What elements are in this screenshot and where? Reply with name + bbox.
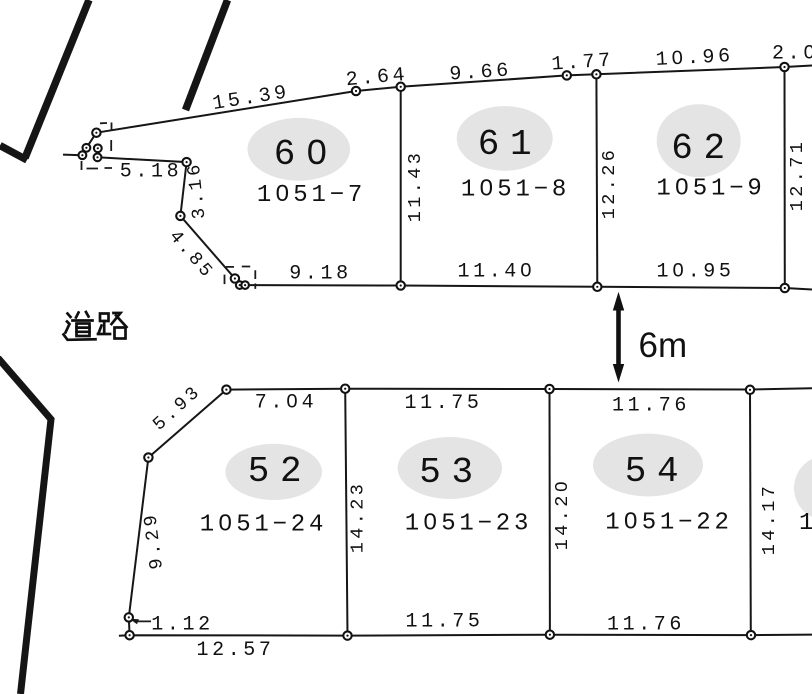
svg-text:14.17: 14.17 <box>759 483 780 556</box>
svg-text:61: 61 <box>478 124 542 165</box>
svg-text:10.95: 10.95 <box>656 261 734 284</box>
svg-text:11.40: 11.40 <box>457 261 535 284</box>
svg-text:1.77: 1.77 <box>551 49 615 76</box>
svg-text:1.12: 1.12 <box>151 614 213 637</box>
svg-text:6m: 6m <box>639 326 688 365</box>
svg-text:14.23: 14.23 <box>348 481 369 554</box>
svg-text:1051−23: 1051−23 <box>405 511 532 538</box>
svg-text:1051−8: 1051−8 <box>461 177 570 204</box>
svg-text:11.75: 11.75 <box>404 392 482 415</box>
svg-text:54: 54 <box>625 451 689 492</box>
svg-text:11.76: 11.76 <box>612 395 690 418</box>
svg-text:9.18: 9.18 <box>289 263 351 286</box>
svg-text:52: 52 <box>248 451 312 492</box>
svg-text:53: 53 <box>419 452 483 493</box>
svg-text:12.71: 12.71 <box>787 139 808 212</box>
svg-text:9.66: 9.66 <box>449 59 513 86</box>
svg-text:1051−24: 1051−24 <box>200 512 327 539</box>
svg-text:10.96: 10.96 <box>655 45 734 72</box>
svg-text:12.57: 12.57 <box>196 639 274 662</box>
svg-text:10: 10 <box>799 510 812 537</box>
svg-text:11.76: 11.76 <box>607 614 685 637</box>
svg-text:12.26: 12.26 <box>599 147 620 220</box>
svg-text:11.43: 11.43 <box>405 150 426 223</box>
svg-text:7.04: 7.04 <box>255 392 317 415</box>
svg-text:5.18: 5.18 <box>120 161 182 184</box>
svg-text:60: 60 <box>274 134 338 175</box>
svg-text:2.0: 2.0 <box>772 43 812 66</box>
svg-text:62: 62 <box>671 128 735 169</box>
svg-text:14.20: 14.20 <box>552 478 573 551</box>
svg-text:1051−9: 1051−9 <box>656 176 765 203</box>
svg-text:1051−22: 1051−22 <box>605 510 732 537</box>
svg-text:11.75: 11.75 <box>405 611 483 634</box>
svg-text:1051−7: 1051−7 <box>257 182 366 209</box>
